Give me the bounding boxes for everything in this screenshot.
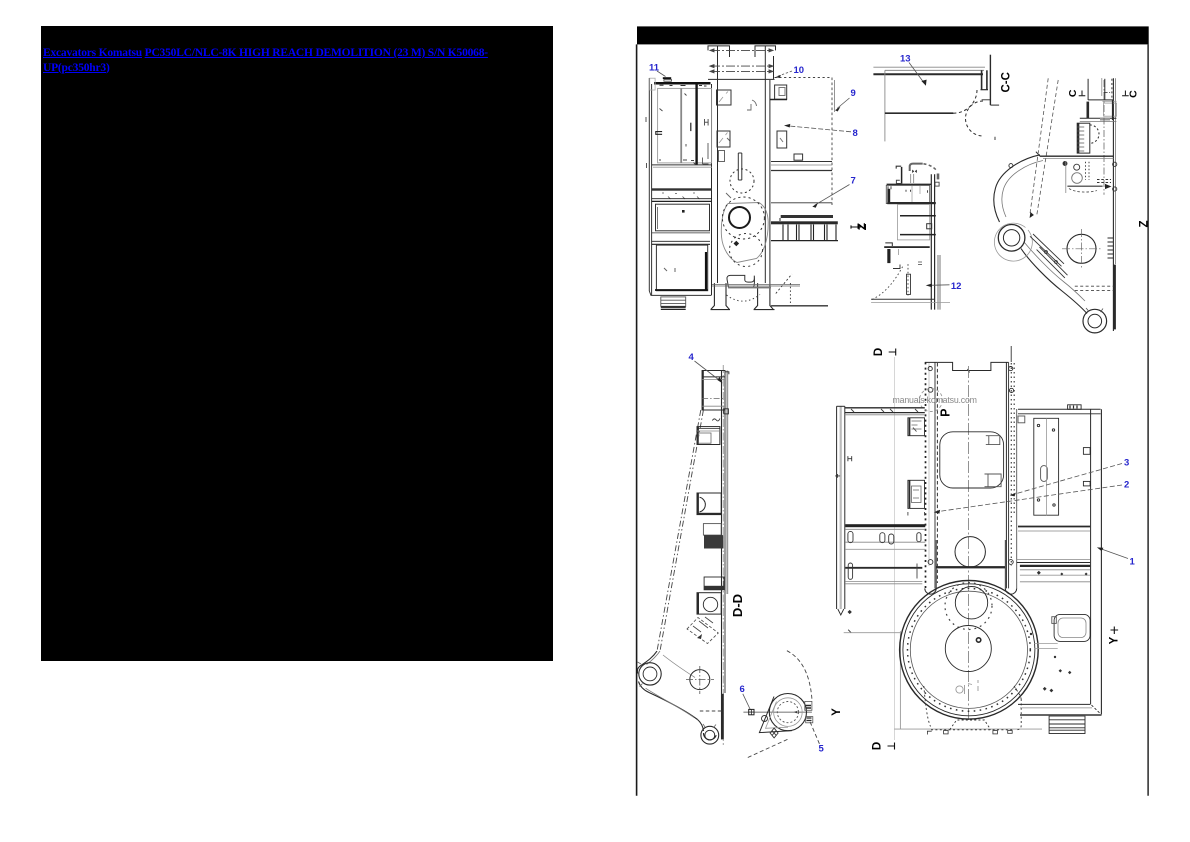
svg-text:3: 3 xyxy=(1124,458,1129,469)
svg-text:5: 5 xyxy=(819,744,825,755)
svg-text:D: D xyxy=(873,348,885,356)
svg-text:D: D xyxy=(872,742,884,750)
svg-text:1: 1 xyxy=(1130,557,1136,568)
svg-text:10: 10 xyxy=(794,65,805,76)
svg-text:C: C xyxy=(1127,90,1139,98)
svg-text:manuals.komatsu.com: manuals.komatsu.com xyxy=(893,395,978,405)
svg-text:D-D: D-D xyxy=(730,594,745,617)
svg-text:7: 7 xyxy=(851,176,856,187)
svg-text:P: P xyxy=(939,409,953,417)
svg-text:4: 4 xyxy=(689,352,695,363)
svg-text:Z: Z xyxy=(1138,220,1150,227)
svg-text:Z: Z xyxy=(856,223,868,230)
svg-text:2: 2 xyxy=(1124,480,1129,491)
svg-text:8: 8 xyxy=(853,128,858,139)
svg-text:6: 6 xyxy=(740,684,745,695)
svg-text:Y: Y xyxy=(1108,636,1120,644)
svg-text:12: 12 xyxy=(951,281,962,292)
svg-text:9: 9 xyxy=(851,88,856,99)
svg-text:C: C xyxy=(1067,89,1079,97)
svg-text:C-C: C-C xyxy=(1001,72,1013,92)
svg-text:Y: Y xyxy=(831,708,843,716)
